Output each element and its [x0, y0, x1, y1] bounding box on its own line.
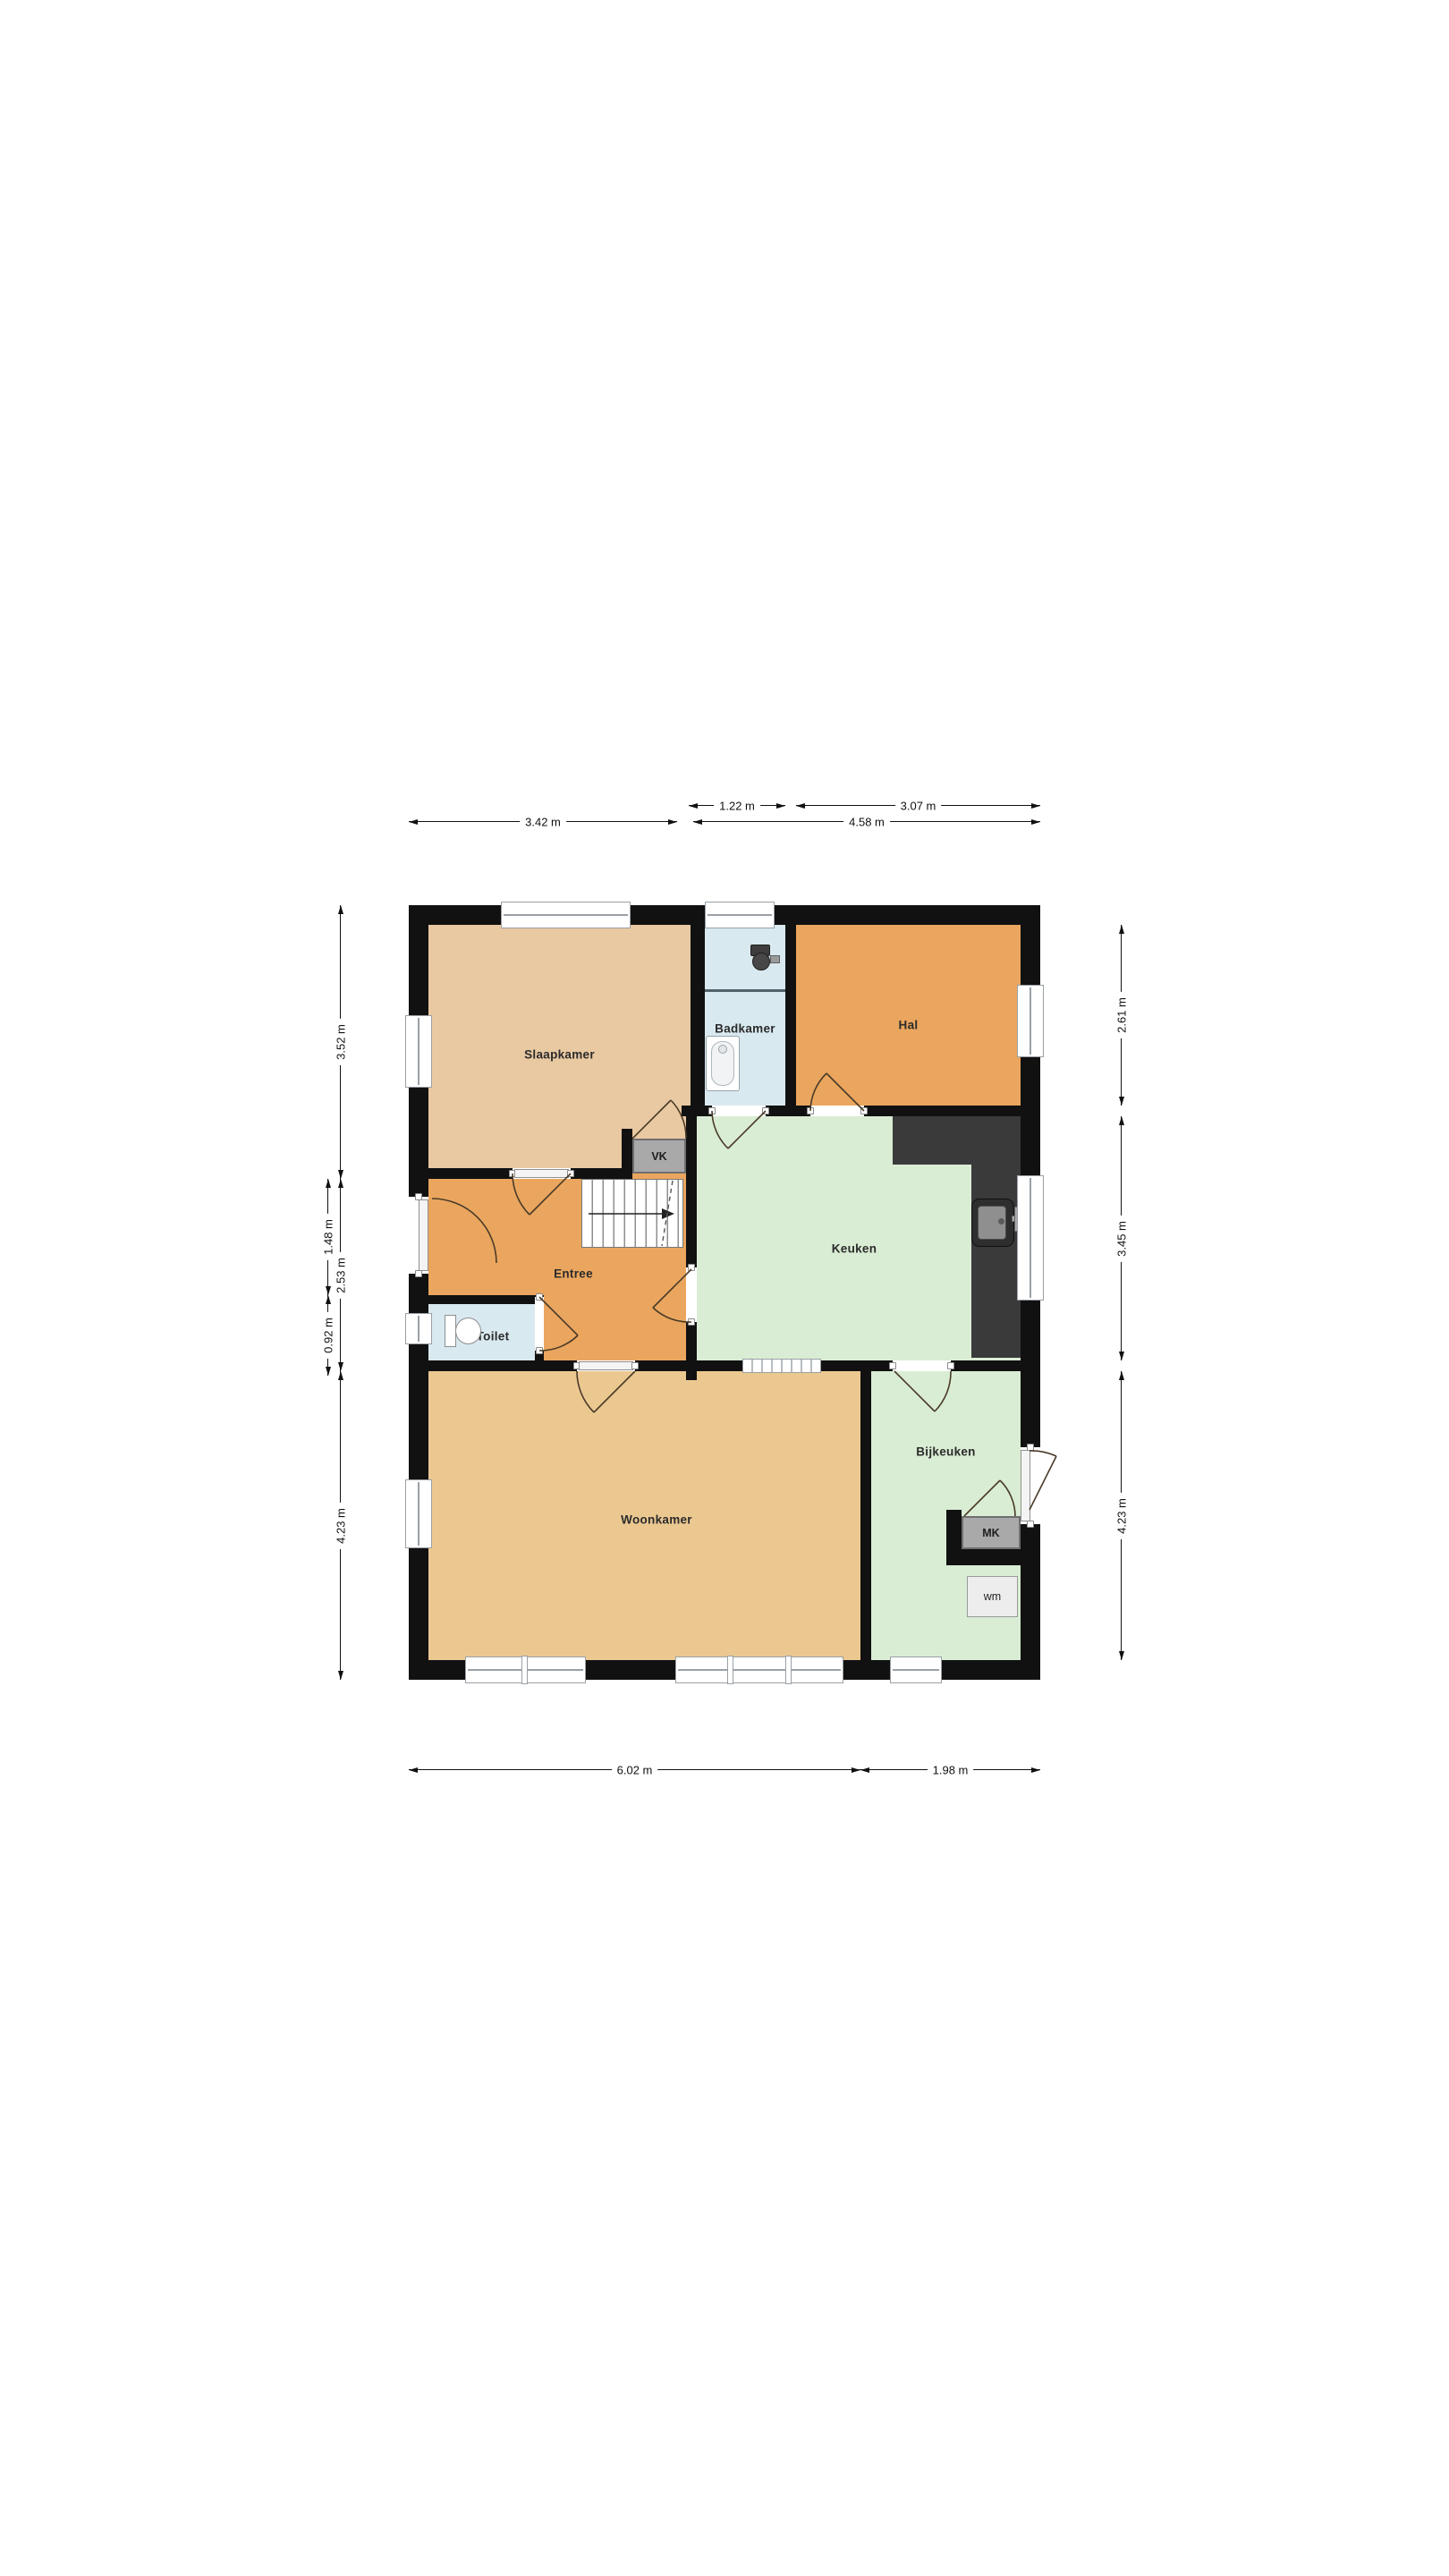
window-keuken-right — [1017, 1175, 1044, 1301]
window-hal-right — [1017, 985, 1044, 1057]
window-mullion — [727, 1656, 733, 1684]
door-badkamer — [712, 1106, 766, 1116]
dim-label: 3.52 m — [335, 1019, 348, 1065]
dim-right-hal: 2.61 m — [1121, 925, 1122, 1106]
stairs-icon — [581, 1179, 683, 1248]
room-label-woonkamer: Woonkamer — [621, 1513, 692, 1527]
toilet-flush-knob — [770, 955, 780, 963]
room-label-entree: Entree — [554, 1267, 593, 1281]
dim-bottom-woonkamer: 6.02 m — [409, 1769, 860, 1770]
bijkeuken-door-leaf — [1021, 1450, 1030, 1521]
dim-right-keuken: 3.45 m — [1121, 1116, 1122, 1360]
wall-slaapkamer-badkamer — [691, 905, 705, 1116]
dim-label: 2.61 m — [1115, 992, 1129, 1038]
room-label-toilet: Toilet — [477, 1330, 510, 1343]
washing-machine-icon: wm — [967, 1576, 1018, 1617]
window-bijkeuken-bottom — [890, 1657, 942, 1683]
dim-label: 3.42 m — [520, 816, 566, 829]
dim-left-toilet: 0.92 m — [327, 1295, 328, 1376]
room-woonkamer: Woonkamer — [428, 1371, 860, 1660]
kitchen-sink-icon — [971, 1199, 1014, 1247]
window-badkamer-top — [705, 902, 775, 928]
hatch-keuken-woonkamer — [742, 1359, 821, 1373]
wall-toilet-top — [428, 1295, 544, 1304]
badkamer-divider-wall — [705, 989, 785, 992]
dim-left-entree-upper: 1.48 m — [327, 1179, 328, 1295]
dim-label: 3.07 m — [895, 800, 942, 813]
door-hal — [810, 1106, 864, 1116]
window-mullion — [521, 1656, 528, 1684]
front-door-leaf — [419, 1199, 428, 1271]
door-leaf — [579, 1361, 633, 1370]
dim-left-woonkamer: 4.23 m — [340, 1371, 341, 1680]
closet-label-mk: MK — [982, 1527, 999, 1539]
dim-label: 4.23 m — [1115, 1493, 1129, 1539]
door-slaapkamer — [513, 1168, 571, 1179]
appliance-label-wm: wm — [984, 1590, 1001, 1603]
wall-entree-keuken — [686, 1106, 697, 1380]
bathtub-drain — [718, 1045, 727, 1054]
room-label-badkamer: Badkamer — [715, 1022, 775, 1036]
dim-label: 1.22 m — [714, 800, 760, 813]
wall-badkamer-hal — [785, 905, 796, 1116]
room-label-keuken: Keuken — [832, 1242, 877, 1256]
dim-label: 4.23 m — [335, 1503, 348, 1549]
bathtub-icon — [706, 1036, 740, 1091]
dim-label: 3.45 m — [1115, 1216, 1129, 1262]
room-label-hal: Hal — [899, 1019, 919, 1032]
toilet-bowl — [752, 953, 770, 970]
door-leaf — [514, 1169, 569, 1178]
dim-label: 6.02 m — [612, 1764, 658, 1777]
window-woonkamer-bottom-2 — [675, 1657, 843, 1683]
wall-woonkamer-bijkeuken — [860, 1360, 871, 1680]
dim-top-badkamer: 1.22 m — [689, 805, 785, 806]
door-keuken-bijkeuken — [893, 1360, 951, 1371]
front-door — [409, 1197, 428, 1274]
wall-mk-bottom — [946, 1549, 1021, 1565]
dim-left-slaapkamer: 3.52 m — [340, 905, 341, 1179]
closet-label-vk: VK — [651, 1150, 666, 1163]
dim-label: 1.48 m — [322, 1214, 335, 1260]
dim-top-hal: 3.07 m — [796, 805, 1040, 806]
dim-top-slaapkamer: 3.42 m — [409, 821, 677, 822]
dim-label: 2.53 m — [335, 1252, 348, 1299]
room-label-slaapkamer: Slaapkamer — [524, 1048, 595, 1062]
window-woonkamer-bottom-1 — [465, 1657, 586, 1683]
door-toilet — [535, 1297, 544, 1351]
room-label-bijkeuken: Bijkeuken — [916, 1445, 975, 1459]
door-entree-woonkamer — [577, 1360, 635, 1371]
window-slaapkamer-top — [501, 902, 631, 928]
dim-label: 1.98 m — [928, 1764, 974, 1777]
dim-bottom-bijkeuken: 1.98 m — [860, 1769, 1040, 1770]
window-toilet-left — [405, 1313, 432, 1344]
bijkeuken-exterior-door — [1021, 1447, 1040, 1524]
floor-plan: Slaapkamer Badkamer Hal Keuken Entree To… — [409, 905, 1040, 1680]
closet-vk: VK — [632, 1139, 686, 1174]
dim-right-bijkeuken: 4.23 m — [1121, 1371, 1122, 1660]
wall-vk-left — [622, 1129, 632, 1179]
dim-label: 4.58 m — [843, 816, 890, 829]
dim-top-right-total: 4.58 m — [693, 821, 1040, 822]
door-keuken-entree — [686, 1267, 697, 1322]
room-hal: Hal — [796, 925, 1021, 1125]
window-slaapkamer-left — [405, 1015, 432, 1088]
sink-drain — [998, 1218, 1004, 1224]
dim-label: 0.92 m — [322, 1312, 335, 1359]
window-woonkamer-left — [405, 1479, 432, 1548]
closet-mk: MK — [962, 1516, 1021, 1549]
floorplan-page: Slaapkamer Badkamer Hal Keuken Entree To… — [0, 0, 1449, 2576]
dim-left-entree: 2.53 m — [340, 1179, 341, 1371]
toilet-bowl — [455, 1318, 481, 1344]
window-mullion — [785, 1656, 792, 1684]
